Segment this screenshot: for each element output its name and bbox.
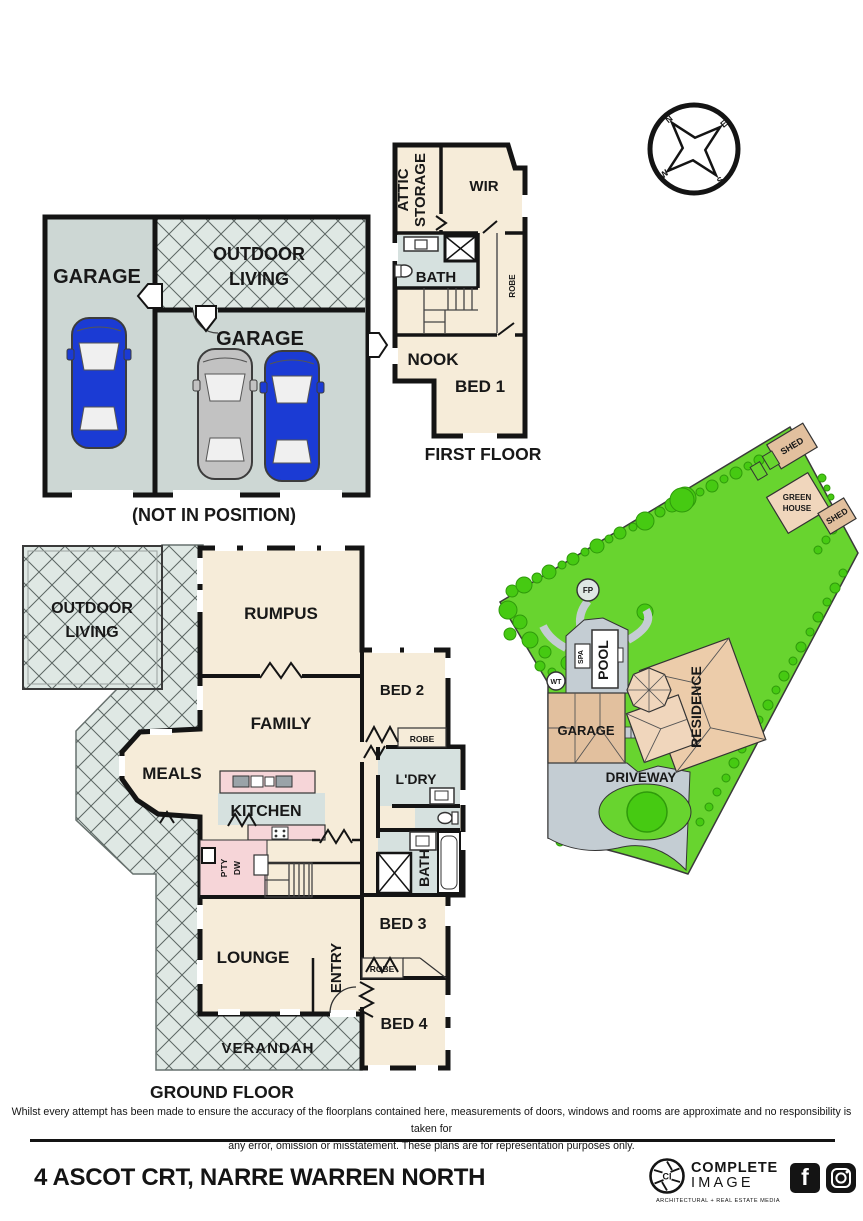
room-label-lounge: LOUNGE [217, 948, 290, 967]
turret-roof [627, 668, 671, 712]
compass-icon: N E S W [633, 88, 756, 212]
complete-image-logo: CI COMPLETE IMAGE ARCHITECTURAL + REAL E… [648, 1157, 790, 1204]
room-label-rumpus: RUMPUS [244, 604, 318, 623]
floorplan-drawing: GARAGE OUTDOOR LIVING GARAGE (NOT IN POS… [0, 0, 863, 1221]
room-label-kitchen: KITCHEN [230, 803, 301, 820]
room-label-robe-ff: ROBE [508, 274, 517, 298]
car-blue-icon [67, 318, 131, 448]
disclaimer: Whilst every attempt has been made to en… [0, 1104, 863, 1155]
footer-divider [30, 1139, 835, 1142]
room-label-outdoor-living-2: LIVING [65, 624, 118, 641]
room-label-outdoor-living-1: OUTDOOR [213, 244, 305, 264]
room-label-entry: ENTRY [328, 943, 345, 993]
room-label-bath-gf: BATH [416, 849, 432, 887]
garage-door-gaps [72, 490, 342, 498]
ground-floor-plan: OUTDOOR LIVING RUMPUS FAMILY MEALS KITCH… [23, 545, 466, 1102]
caption-not-in-position: (NOT IN POSITION) [132, 505, 296, 525]
aperture-icon: CI [648, 1157, 686, 1195]
room-label-attic-2: STORAGE [412, 153, 429, 227]
label-residence: RESIDENCE [688, 666, 704, 748]
label-driveway: DRIVEWAY [606, 770, 677, 785]
room-label-verandah: VERANDAH [221, 1040, 314, 1057]
car-silver-icon [193, 349, 257, 479]
label-wt: WT [551, 679, 563, 686]
first-floor-plan: ATTIC STORAGE WIR BATH ROBE NOOK BED 1 F… [392, 145, 542, 464]
facebook-icon: f [790, 1163, 820, 1193]
room-label-bath-ff: BATH [416, 269, 457, 286]
room-label-wir: WIR [469, 178, 498, 195]
greenhouse-label-1: GREEN [783, 493, 812, 502]
ground-floor-title: GROUND FLOOR [150, 1082, 294, 1102]
room-label-bed3: BED 3 [379, 916, 426, 933]
label-site-garage: GARAGE [557, 723, 614, 738]
room-label-pantry-2: DW [232, 860, 242, 875]
instagram-icon [826, 1163, 856, 1193]
room-label-outdoor-living-2: LIVING [229, 269, 289, 289]
room-label-meals: MEALS [142, 764, 202, 783]
first-floor-title: FIRST FLOOR [425, 444, 542, 464]
site-plan: SHED GREEN HOUSE SHED FP WT SPA POOL GAR… [499, 423, 858, 874]
greenhouse-label-2: HOUSE [783, 504, 812, 513]
label-fp: FP [583, 586, 594, 595]
room-label-robe-bed3: ROBE [370, 964, 395, 974]
door-arrow-icon [368, 333, 387, 357]
room-label-ldry: L'DRY [396, 771, 438, 787]
room-label-bed2: BED 2 [380, 682, 424, 699]
room-label-garage-left: GARAGE [53, 266, 141, 288]
room-label-attic-1: ATTIC [395, 168, 412, 211]
disclaimer-line1: Whilst every attempt has been made to en… [0, 1104, 863, 1138]
room-label-garage-main: GARAGE [216, 328, 304, 350]
social-icons: f [790, 1163, 856, 1193]
room-label-family: FAMILY [251, 714, 312, 733]
room-label-robe-bed2: ROBE [410, 734, 435, 744]
floorplan-document: GARAGE OUTDOOR LIVING GARAGE (NOT IN POS… [0, 0, 863, 1221]
logo-tagline: ARCHITECTURAL + REAL ESTATE MEDIA [648, 1198, 788, 1204]
room-label-bed4: BED 4 [380, 1016, 427, 1033]
property-address: 4 ASCOT CRT, NARRE WARREN NORTH [34, 1164, 485, 1192]
label-pool: POOL [595, 640, 611, 680]
garage-plan: GARAGE OUTDOOR LIVING GARAGE (NOT IN POS… [45, 217, 387, 525]
room-label-pantry-1: P'TY [219, 858, 229, 877]
outdoor-living-area [23, 546, 162, 689]
car-blue-icon [260, 351, 324, 481]
logo-line2: IMAGE [691, 1176, 778, 1191]
room-label-nook: NOOK [408, 350, 460, 369]
label-spa: SPA [578, 650, 585, 664]
room-label-bed1: BED 1 [455, 377, 505, 396]
room-label-outdoor-living-1: OUTDOOR [51, 600, 133, 617]
logo-line1: COMPLETE [691, 1161, 778, 1176]
logo-monogram: CI [663, 1172, 672, 1182]
